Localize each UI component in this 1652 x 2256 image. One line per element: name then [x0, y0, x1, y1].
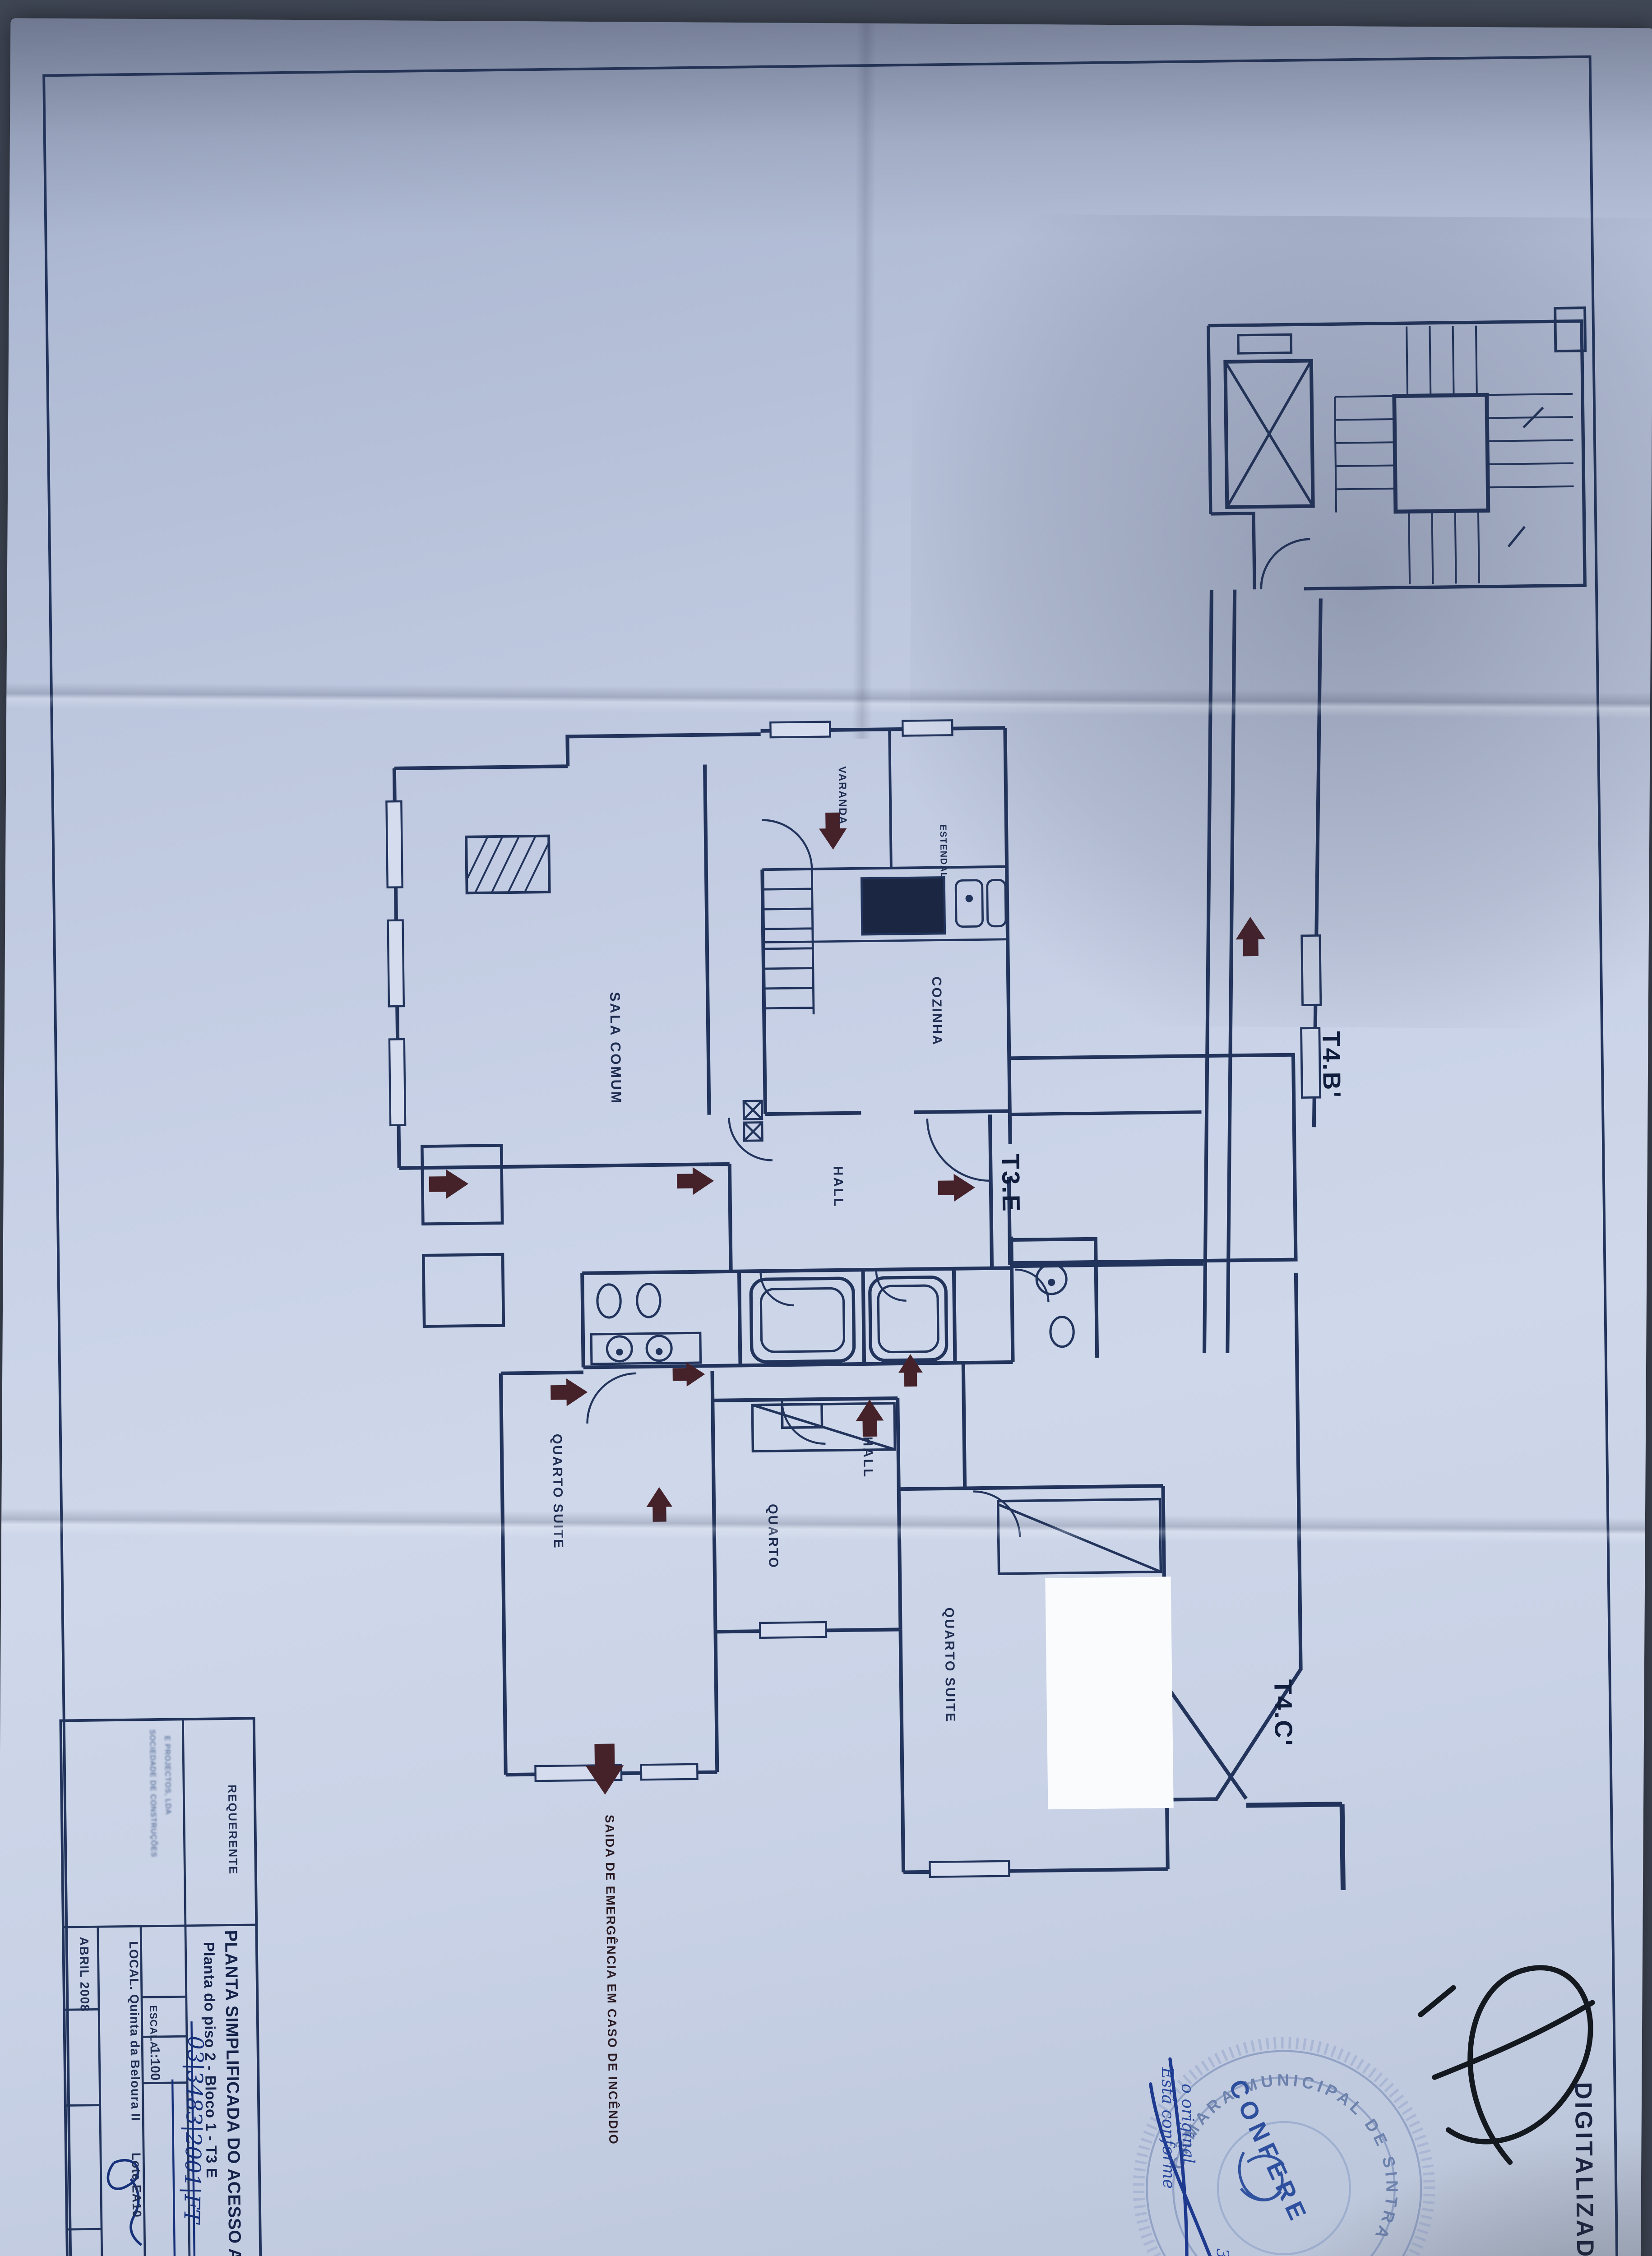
staircase-treads: [1334, 324, 1575, 585]
titleblock-escala-label: ESCALA: [147, 2005, 157, 2049]
titleblock-requerente-label: REQUERENTE: [225, 1784, 238, 1875]
floor-plan-drawing: CÂMARA MUNICIPAL DE SINTRA: [0, 13, 1652, 2256]
titleblock-main-title: PLANTA SIMPLIFICADA DO ACESSO AO FOGO: [221, 1930, 243, 2256]
direction-arrow-icon: [1236, 917, 1265, 957]
stamp-note-line1: Está conforme: [1157, 2067, 1175, 2189]
drawing-content: CÂMARA MUNICIPAL DE SINTRA: [0, 13, 1652, 2256]
kitchen-fixtures: [741, 867, 1010, 1141]
emergency-exit-note: SAIDA DE EMERGÊNCIA EM CASO DE INCÊNDIO: [603, 1815, 619, 2145]
paper-sheet: CÂMARA MUNICIPAL DE SINTRA: [0, 18, 1652, 2256]
corridor-party-walls: [1195, 588, 1330, 1353]
signature-ink: [1420, 1967, 1594, 2164]
floor-tile-icon: [744, 1101, 762, 1141]
titleblock-local-line: LOCAL. Quinta da Beloura II: [127, 1941, 141, 2121]
room-label-quarto: QUARTO: [765, 1504, 779, 1569]
direction-arrow-icon: [551, 1378, 588, 1407]
room-label-hall-upper: HALL: [830, 1166, 844, 1208]
titleblock-company-line2: E PROJECTOS, LDA: [162, 1736, 171, 1815]
room-label-hall-lower: HALL: [860, 1437, 874, 1479]
stair-core: [1208, 308, 1588, 590]
emergency-exit-arrow-icon: [585, 1743, 624, 1795]
photo-of-document: CÂMARA MUNICIPAL DE SINTRA: [0, 0, 1652, 2256]
titleblock-company-line1: SOCIEDADE DE CONSTRUÇÕES: [148, 1729, 157, 1858]
whiteout-patch: [1045, 1576, 1173, 1809]
unit-label-t4b: T4.B': [1318, 1031, 1343, 1099]
hatched-balcony: [466, 836, 550, 893]
room-label-sala-comum: SALA COMUM: [608, 992, 623, 1105]
direction-arrow-icon: [677, 1167, 714, 1195]
room-label-varanda: VARANDA: [834, 766, 846, 825]
stamp-note-date: 3/1/2019: [1212, 2248, 1230, 2256]
titleblock-lote: Lote EA10: [130, 2153, 143, 2218]
titleblock-escala-value: 1:100: [147, 2047, 161, 2080]
unit-label-t3e: T3.E: [997, 1154, 1023, 1213]
handwritten-process-ref: 03|3483|2001|FT: [179, 2036, 205, 2224]
bathroom-fixtures: [590, 1264, 1074, 1364]
room-label-quarto-suite-lower: QUARTO SUITE: [941, 1607, 956, 1723]
titleblock-date: ABRIL 2008: [77, 1937, 90, 2012]
direction-arrow-icon: [646, 1487, 673, 1522]
direction-arrow-icon: [856, 1400, 884, 1437]
stamp-note-line2: o original: [1177, 2084, 1194, 2164]
direction-arrow-icon: [429, 1169, 469, 1199]
room-label-estendal: ESTENDAL: [936, 824, 946, 878]
unit-label-t4c: T4.C': [1269, 1679, 1295, 1747]
room-label-cozinha: COZINHA: [929, 976, 943, 1046]
room-label-quarto-suite-left: QUARTO SUITE: [550, 1434, 564, 1549]
digitalizado-watermark: DIGITALIZADO: [1569, 2082, 1596, 2256]
sheet-border: [44, 57, 1618, 2256]
